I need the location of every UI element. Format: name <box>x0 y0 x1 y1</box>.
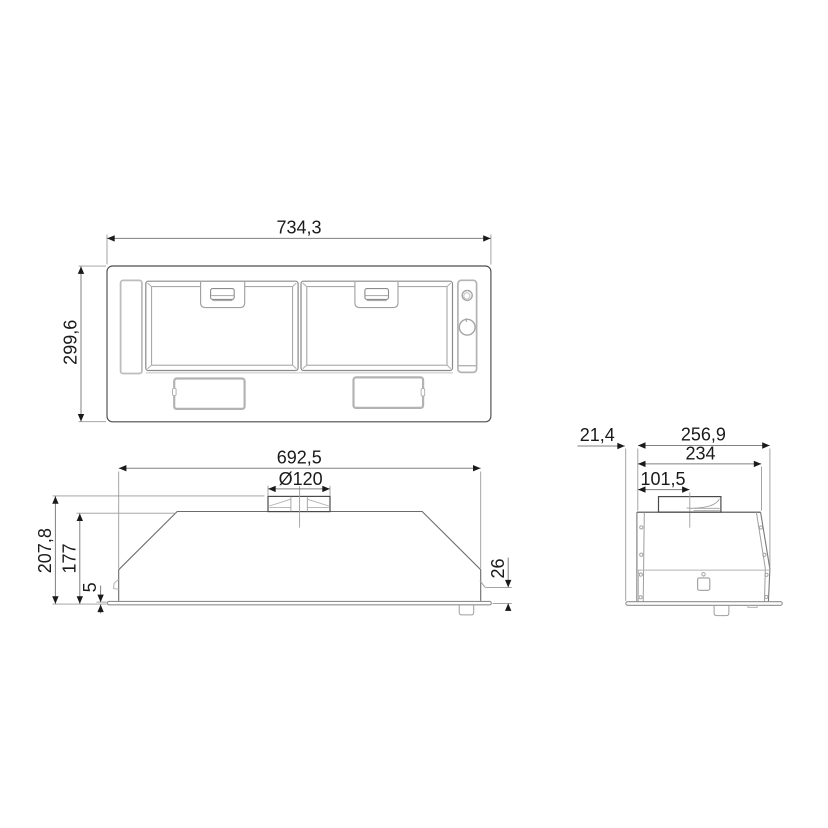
svg-text:692,5: 692,5 <box>277 448 322 468</box>
svg-text:21,4: 21,4 <box>580 425 615 445</box>
svg-text:101,5: 101,5 <box>640 469 685 489</box>
svg-text:207,8: 207,8 <box>35 528 55 573</box>
svg-text:Ø120: Ø120 <box>279 469 323 489</box>
svg-text:256,9: 256,9 <box>681 425 726 445</box>
svg-text:26: 26 <box>488 558 508 578</box>
svg-text:734,3: 734,3 <box>276 218 321 238</box>
svg-text:177: 177 <box>59 543 79 573</box>
svg-text:299,6: 299,6 <box>61 320 81 365</box>
svg-text:234: 234 <box>685 443 715 463</box>
svg-text:5: 5 <box>80 582 100 592</box>
